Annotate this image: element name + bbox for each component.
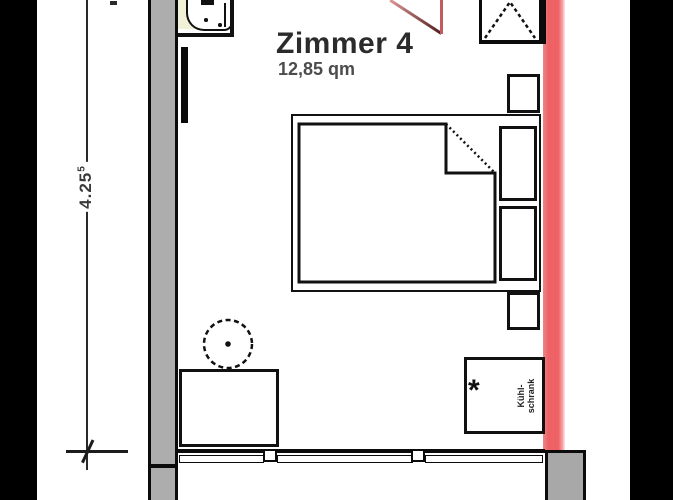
left-wall-joint-line — [148, 464, 178, 468]
radiator-bar — [181, 47, 188, 123]
window-sill-line — [177, 449, 545, 453]
highlighted-wall-red — [543, 0, 565, 453]
right-letterbox-bar — [630, 0, 673, 500]
sink-drain-dot — [218, 23, 222, 27]
sink-niche-partition-line — [178, 33, 234, 37]
dimension-top-tick — [110, 1, 117, 5]
door-frame-line — [440, 0, 443, 34]
pillow-bottom — [499, 206, 537, 281]
window-pane — [277, 455, 413, 463]
dimension-superscript: 5 — [76, 165, 87, 172]
corner-wall-block — [545, 450, 586, 500]
left-wall — [148, 0, 178, 500]
dimension-label: 4.255 — [76, 162, 96, 212]
shaft-box — [479, 0, 546, 44]
shaft-triangle-icon — [482, 0, 539, 40]
sink-tap — [201, 0, 214, 5]
sink-drain-dot — [204, 18, 208, 22]
dimension-bottom-tick — [66, 450, 128, 453]
sink-niche-wall-stub — [230, 0, 234, 36]
window-mullion — [263, 449, 277, 462]
dimension-line — [86, 0, 88, 470]
dimension-value: 4.25 — [76, 172, 95, 209]
fridge-asterisk: * — [468, 376, 480, 406]
fridge-label-line1: Kühl- — [516, 379, 526, 414]
window-mullion — [411, 449, 425, 462]
nightstand-bottom — [507, 292, 540, 330]
window-pane — [425, 455, 543, 463]
nightstand-top — [507, 74, 540, 113]
room-area-label: 12,85 qm — [278, 59, 355, 80]
floorplan-canvas: 4.255 Zimmer 4 12,85 qm * Kühl- sc — [0, 0, 673, 500]
room-name-label: Zimmer 4 — [276, 27, 413, 61]
left-letterbox-bar — [0, 0, 37, 500]
stool-center-dot — [225, 341, 231, 347]
window-pane — [179, 455, 264, 463]
fridge-label-line2: schrank — [526, 379, 536, 414]
pillow-top — [499, 126, 537, 201]
stool-circle — [200, 316, 256, 372]
sink-basin-inner-line — [224, 3, 226, 27]
mattress — [296, 121, 498, 285]
blanket-fold-line — [446, 124, 495, 173]
desk — [179, 369, 279, 447]
fridge-label: Kühl- schrank — [516, 379, 536, 414]
